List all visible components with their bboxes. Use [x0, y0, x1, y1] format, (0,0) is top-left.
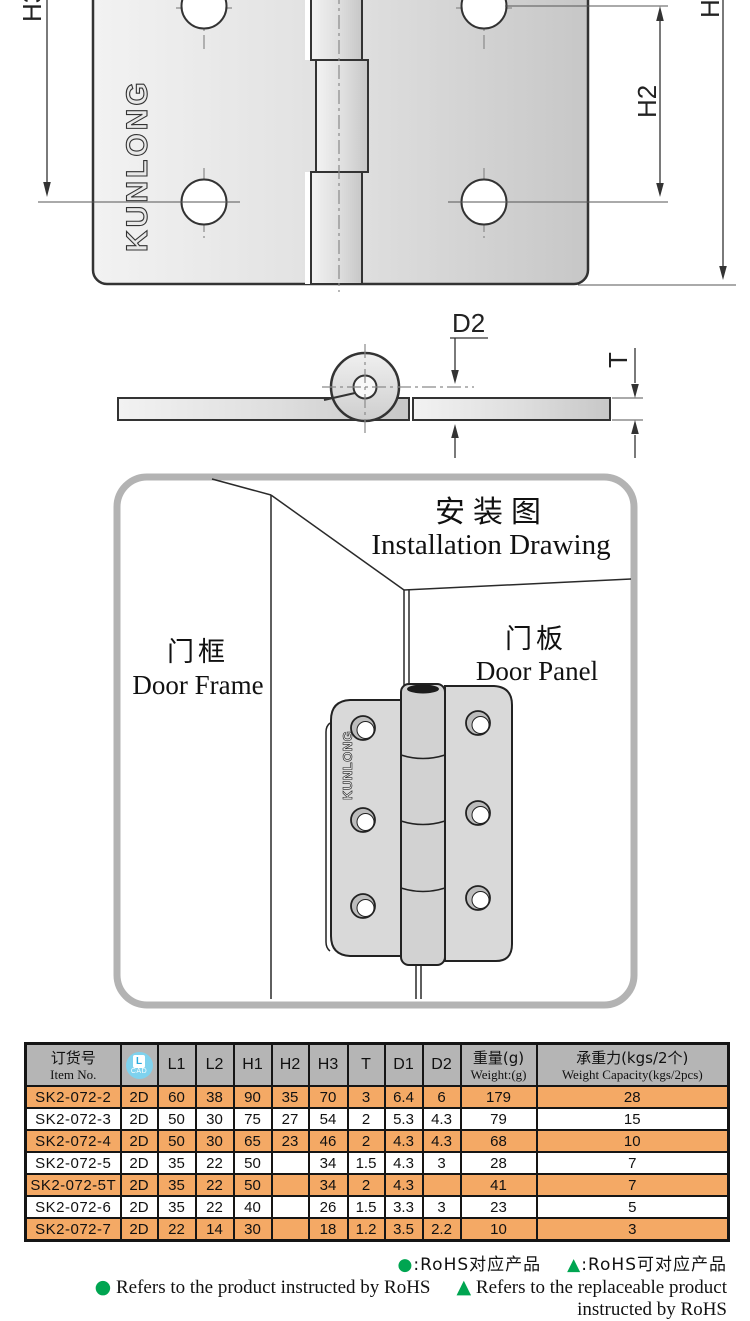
cell-l2: 14: [196, 1218, 234, 1241]
rohs-legend: ●:RoHS对应产品▲:RoHS可对应产品 ● Refers to the pr…: [22, 1250, 727, 1321]
dim-label-h2: H2: [632, 85, 662, 118]
column-header-h1: H1: [234, 1044, 272, 1087]
cell-item: SK2-072-3: [26, 1108, 121, 1130]
cell-h1: 40: [234, 1196, 272, 1218]
table-row: SK2-072-52D352250341.54.33287: [26, 1152, 729, 1174]
cell-t: 2: [348, 1108, 385, 1130]
cell-h1: 75: [234, 1108, 272, 1130]
cell-capacity: 3: [537, 1218, 729, 1241]
cell-d1: 6.4: [385, 1086, 423, 1108]
table-row: SK2-072-22D603890357036.4617928: [26, 1086, 729, 1108]
cell-d2: 3: [423, 1152, 461, 1174]
cell-capacity: 7: [537, 1174, 729, 1196]
cell-l1: 22: [158, 1218, 196, 1241]
cell-h2: 27: [272, 1108, 309, 1130]
cell-h3: 34: [309, 1152, 348, 1174]
cell-d2: 4.3: [423, 1108, 461, 1130]
door-panel-label-cn: 门板: [505, 624, 567, 655]
cell-h2: [272, 1174, 309, 1196]
column-header-l1: L1: [158, 1044, 196, 1087]
column-header-t: T: [348, 1044, 385, 1087]
cell-weight: 68: [461, 1130, 537, 1152]
dim-label-h3: H3: [17, 0, 47, 22]
cell-h1: 65: [234, 1130, 272, 1152]
rohs-triangle-icon: ▲: [457, 1276, 472, 1298]
door-panel-label-en: Door Panel: [476, 656, 598, 686]
cell-l1: 35: [158, 1152, 196, 1174]
cell-weight: 28: [461, 1152, 537, 1174]
dim-label-d2: D2: [452, 308, 485, 338]
cell-item: SK2-072-5T: [26, 1174, 121, 1196]
cell-capacity: 15: [537, 1108, 729, 1130]
cell-d2: 4.3: [423, 1130, 461, 1152]
installation-drawing: KUNLONG 安装图 Installation Drawing 门框 Door…: [0, 470, 750, 1010]
cell-capacity: 10: [537, 1130, 729, 1152]
spec-table-header: 订货号Item No.LCADL1L2H1H2H3TD1D2重量(g)Weigh…: [26, 1044, 729, 1087]
cell-h3: 34: [309, 1174, 348, 1196]
cell-capacity: 28: [537, 1086, 729, 1108]
catalog-page: { "colors":{ "accent_orange":"#f4a965", …: [0, 0, 750, 1304]
cell-item: SK2-072-7: [26, 1218, 121, 1241]
rohs-legend-cn: ●:RoHS对应产品▲:RoHS可对应产品: [22, 1250, 727, 1275]
hinge-front-view: KUNLONG H3 H2 H: [17, 0, 736, 292]
cell-d2: 2.2: [423, 1218, 461, 1241]
cell-l1: 35: [158, 1174, 196, 1196]
cell-item: SK2-072-5: [26, 1152, 121, 1174]
cell-d2: 6: [423, 1086, 461, 1108]
cell-h3: 26: [309, 1196, 348, 1218]
table-row: SK2-072-42D503065234624.34.36810: [26, 1130, 729, 1152]
column-header-item: 订货号Item No.: [26, 1044, 121, 1087]
cell-h1: 50: [234, 1152, 272, 1174]
cell-d1: 4.3: [385, 1174, 423, 1196]
cell-t: 1.5: [348, 1196, 385, 1218]
table-row: SK2-072-32D503075275425.34.37915: [26, 1108, 729, 1130]
cell-l2: 30: [196, 1108, 234, 1130]
cell-l1: 50: [158, 1108, 196, 1130]
cell-h2: [272, 1218, 309, 1241]
cell-h3: 18: [309, 1218, 348, 1241]
cell-l2: 22: [196, 1196, 234, 1218]
table-row: SK2-072-72D221430181.23.52.2103: [26, 1218, 729, 1241]
cell-d1: 3.3: [385, 1196, 423, 1218]
table-row: SK2-072-62D352240261.53.33235: [26, 1196, 729, 1218]
column-header-d2: D2: [423, 1044, 461, 1087]
cell-cad[interactable]: 2D: [121, 1218, 158, 1241]
door-frame-label-cn: 门框: [167, 637, 229, 668]
cell-h2: 35: [272, 1086, 309, 1108]
cell-capacity: 5: [537, 1196, 729, 1218]
cell-l1: 35: [158, 1196, 196, 1218]
cell-weight: 41: [461, 1174, 537, 1196]
installation-title-cn: 安装图: [435, 495, 549, 530]
rohs-cn-text-2: :RoHS可对应产品: [581, 1255, 727, 1275]
cell-cad[interactable]: 2D: [121, 1152, 158, 1174]
spec-table-body: SK2-072-22D603890357036.4617928SK2-072-3…: [26, 1086, 729, 1241]
cell-h3: 54: [309, 1108, 348, 1130]
column-header-h2: H2: [272, 1044, 309, 1087]
hinge-pin-top: [407, 685, 439, 694]
cell-d1: 4.3: [385, 1152, 423, 1174]
column-header-l2: L2: [196, 1044, 234, 1087]
cell-cad[interactable]: 2D: [121, 1130, 158, 1152]
cell-h3: 46: [309, 1130, 348, 1152]
column-header-d1: D1: [385, 1044, 423, 1087]
cell-weight: 10: [461, 1218, 537, 1241]
cell-l1: 50: [158, 1130, 196, 1152]
rohs-circle-icon: ●: [95, 1276, 112, 1298]
column-header-weight: 重量(g)Weight:(g): [461, 1044, 537, 1087]
cell-cad[interactable]: 2D: [121, 1086, 158, 1108]
installation-title-en: Installation Drawing: [371, 529, 610, 561]
cell-t: 2: [348, 1174, 385, 1196]
cell-d2: 3: [423, 1196, 461, 1218]
cell-l2: 22: [196, 1152, 234, 1174]
cell-t: 1.2: [348, 1218, 385, 1241]
cell-cad[interactable]: 2D: [121, 1174, 158, 1196]
cell-t: 3: [348, 1086, 385, 1108]
cell-cad[interactable]: 2D: [121, 1196, 158, 1218]
door-frame-label-en: Door Frame: [132, 670, 263, 700]
dim-label-h1: H: [695, 0, 725, 18]
knuckle-top: [311, 0, 362, 60]
rohs-legend-en: ● Refers to the product instructed by Ro…: [22, 1276, 727, 1321]
rohs-circle-icon: ●: [398, 1255, 414, 1275]
column-header-cad: LCAD: [121, 1044, 158, 1087]
cell-h1: 50: [234, 1174, 272, 1196]
column-header-h3: H3: [309, 1044, 348, 1087]
knuckle-bottom: [311, 172, 362, 284]
cell-item: SK2-072-4: [26, 1130, 121, 1152]
knuckle-middle: [316, 60, 368, 172]
rohs-cn-text-1: :RoHS对应产品: [413, 1255, 541, 1275]
cell-l2: 30: [196, 1130, 234, 1152]
cell-weight: 179: [461, 1086, 537, 1108]
cell-d1: 4.3: [385, 1130, 423, 1152]
cell-t: 2: [348, 1130, 385, 1152]
brand-engraving-3d: KUNLONG: [340, 731, 355, 800]
cell-item: SK2-072-2: [26, 1086, 121, 1108]
cell-l2: 38: [196, 1086, 234, 1108]
cell-t: 1.5: [348, 1152, 385, 1174]
cell-l2: 22: [196, 1174, 234, 1196]
cell-h1: 30: [234, 1218, 272, 1241]
cell-d1: 5.3: [385, 1108, 423, 1130]
cell-h2: [272, 1152, 309, 1174]
cell-h2: [272, 1196, 309, 1218]
hinge-3d-drawing: KUNLONG: [326, 684, 512, 965]
cell-weight: 79: [461, 1108, 537, 1130]
cell-cad[interactable]: 2D: [121, 1108, 158, 1130]
hinge-technical-views: KUNLONG H3 H2 H D2 T: [0, 0, 750, 470]
column-header-capacity: 承重力(kgs/2个)Weight Capacity(kgs/2pcs): [537, 1044, 729, 1087]
cell-item: SK2-072-6: [26, 1196, 121, 1218]
cell-l1: 60: [158, 1086, 196, 1108]
cell-weight: 23: [461, 1196, 537, 1218]
cell-h2: 23: [272, 1130, 309, 1152]
rohs-en-text-1: Refers to the product instructed by RoHS: [116, 1277, 431, 1298]
cad-icon: LCAD: [126, 1052, 153, 1079]
dim-label-t: T: [603, 352, 633, 368]
cell-h1: 90: [234, 1086, 272, 1108]
cell-h3: 70: [309, 1086, 348, 1108]
cell-d2: [423, 1174, 461, 1196]
hinge-side-view: D2 T: [118, 308, 643, 458]
brand-engraving: KUNLONG: [121, 79, 154, 252]
cell-d1: 3.5: [385, 1218, 423, 1241]
table-row: SK2-072-5T2D3522503424.3417: [26, 1174, 729, 1196]
cell-capacity: 7: [537, 1152, 729, 1174]
spec-table: 订货号Item No.LCADL1L2H1H2H3TD1D2重量(g)Weigh…: [24, 1042, 730, 1242]
rohs-en-text-2: Refers to the replaceable product instru…: [476, 1277, 727, 1320]
rohs-triangle-icon: ▲: [567, 1255, 581, 1275]
